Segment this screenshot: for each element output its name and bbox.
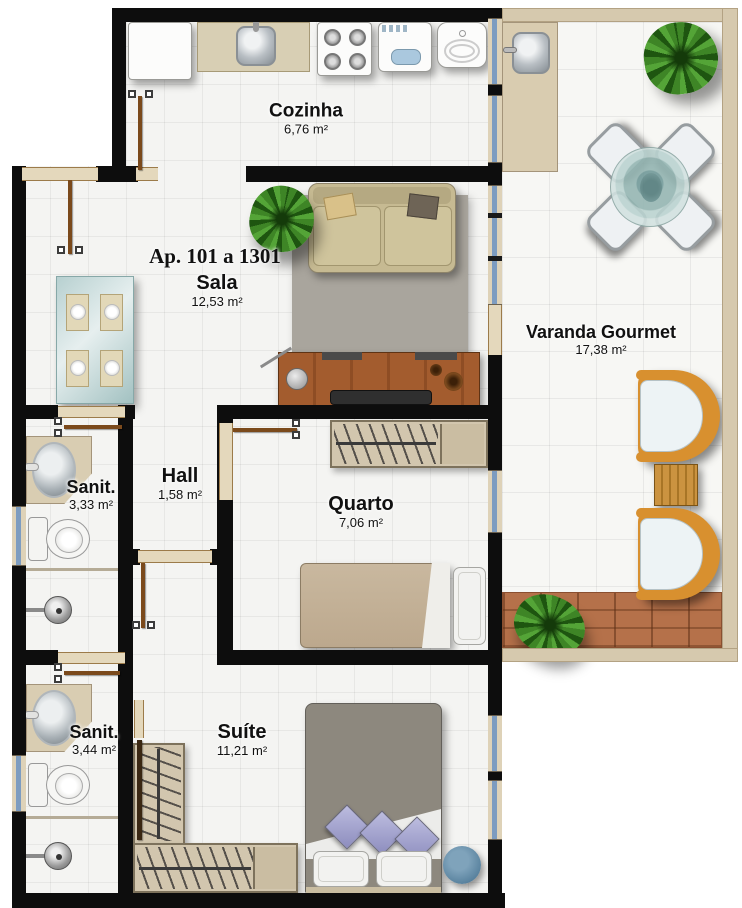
shower-partition: [26, 568, 118, 571]
room-label-hall: Hall 1,58 m²: [158, 465, 202, 503]
room-name: Varanda Gourmet: [526, 322, 676, 343]
window: [488, 470, 502, 533]
door-threshold: [58, 652, 125, 664]
door-hinge: [54, 663, 62, 671]
plate: [70, 360, 86, 376]
wall-segment: [96, 166, 138, 182]
entrance-door-leaf: [68, 180, 72, 254]
bed-pillow: [453, 567, 486, 645]
door-leaf: [64, 425, 122, 429]
door-hinge: [57, 246, 65, 254]
hanger-rail: [336, 442, 436, 445]
shower-head: [44, 842, 72, 870]
room-area: 7,06 m²: [328, 516, 394, 531]
speaker: [415, 352, 457, 360]
burner: [349, 29, 366, 46]
wardrobe: [330, 420, 488, 468]
wall-segment: [118, 405, 133, 655]
laundry-tub: [437, 22, 487, 68]
burner: [324, 53, 341, 70]
side-table: [654, 464, 698, 506]
wardrobe-shelf: [253, 847, 296, 889]
round-glass-table: [610, 147, 690, 227]
gourmet-faucet: [503, 47, 517, 53]
toilet: [28, 763, 48, 807]
basin-faucet: [24, 711, 39, 719]
room-label-quarto: Quarto 7,06 m²: [328, 493, 394, 531]
window: [488, 18, 502, 85]
room-area: 3,44 m²: [69, 743, 118, 758]
speaker: [322, 352, 362, 360]
window: [12, 755, 26, 812]
door-leaf: [64, 671, 120, 675]
door-hinge: [75, 246, 83, 254]
room-area: 17,38 m²: [526, 343, 676, 358]
decor-bowl: [430, 364, 442, 376]
fridge: [128, 22, 192, 80]
wall-segment: [12, 893, 505, 908]
wall-segment: [217, 650, 502, 665]
shower-partition: [26, 816, 118, 819]
shower-center: [56, 854, 62, 860]
plate: [70, 304, 86, 320]
wardrobe-shelf: [440, 424, 484, 464]
wall-segment: [118, 650, 133, 893]
door-hinge: [54, 417, 62, 425]
room-name: Suíte: [217, 721, 267, 744]
place-setting: [66, 294, 89, 331]
room-name: Cozinha: [269, 101, 343, 123]
door-leaf: [138, 96, 142, 170]
throw-pillow: [407, 193, 440, 219]
burner: [324, 29, 341, 46]
room-name: Sanit.: [66, 477, 115, 498]
door-hinge: [132, 621, 140, 629]
door-panel-divider: [488, 256, 502, 261]
shower-head: [44, 596, 72, 624]
wall-segment: [488, 840, 502, 893]
door-hinge: [292, 431, 300, 439]
wall-segment: [210, 549, 233, 565]
hanger-rail: [139, 867, 251, 870]
bowl-inner: [55, 773, 83, 799]
toilet-bowl: [46, 765, 90, 805]
window: [488, 780, 502, 840]
wall-segment: [488, 8, 502, 18]
wall-segment: [112, 8, 502, 22]
parapet-top: [502, 8, 738, 22]
table-center: [640, 173, 662, 202]
room-area: 11,21 m²: [217, 744, 267, 759]
room-name: Sala: [191, 272, 242, 295]
tv: [330, 390, 432, 405]
parapet-bottom: [502, 648, 738, 662]
plate: [104, 360, 120, 376]
exterior-area: [0, 0, 112, 166]
door-hinge: [292, 419, 300, 427]
gourmet-sink: [512, 32, 550, 74]
wall-segment: [118, 549, 140, 565]
wall-segment: [488, 355, 502, 470]
door-threshold: [138, 550, 212, 563]
washing-machine: [378, 22, 432, 72]
room-label-sala: Sala 12,53 m²: [191, 272, 242, 310]
room-label-cozinha: Cozinha 6,76 m²: [269, 101, 343, 138]
table-lamp: [286, 368, 308, 390]
double-bed: [305, 703, 442, 893]
wall-segment: [12, 650, 58, 665]
entrance-threshold: [22, 167, 98, 181]
sliding-glass-door: [488, 185, 502, 305]
place-setting: [100, 350, 123, 387]
window: [12, 506, 26, 566]
wall-segment: [217, 405, 502, 419]
decor-bowl: [444, 372, 463, 391]
chair-cushion: [640, 380, 703, 452]
room-label-sanit1: Sanit. 3,33 m²: [66, 477, 115, 513]
window: [488, 715, 502, 772]
room-label-suite: Suíte 11,21 m²: [217, 721, 267, 759]
door-hinge: [54, 675, 62, 683]
wall-segment: [488, 163, 502, 185]
toilet-bowl: [46, 519, 90, 559]
door-hinge: [145, 90, 153, 98]
bowl-inner: [55, 527, 83, 553]
room-area: 3,33 m²: [66, 498, 115, 513]
wall-segment: [246, 166, 502, 182]
control-panel: [382, 25, 408, 32]
floor-plan: Cozinha 6,76 m² Ap. 101 a 1301 Sala 12,5…: [0, 0, 742, 908]
tub-ridges: [449, 44, 475, 58]
room-area: 1,58 m²: [158, 488, 202, 503]
wardrobe-l-horizontal: [133, 843, 298, 893]
toilet: [28, 517, 48, 561]
wall-segment: [112, 8, 126, 174]
door-hinge: [128, 90, 136, 98]
window-mullion: [488, 85, 502, 95]
burner: [349, 53, 366, 70]
window-mullion: [488, 772, 502, 780]
door-leaf: [141, 563, 145, 628]
sofa: [308, 183, 456, 273]
plate: [104, 304, 120, 320]
window: [488, 95, 502, 163]
basin-faucet: [24, 463, 39, 471]
room-name: Sanit.: [69, 722, 118, 743]
stove: [317, 22, 372, 76]
parapet-right: [722, 8, 738, 662]
door-threshold: [58, 406, 125, 418]
shower-center: [56, 608, 62, 614]
door-leaf: [233, 428, 297, 432]
wall-segment: [488, 533, 502, 715]
door-hinge: [54, 429, 62, 437]
door-jamb: [134, 700, 144, 738]
room-area: 6,76 m²: [269, 122, 343, 137]
wall-segment: [12, 405, 58, 419]
chair-cushion: [640, 518, 703, 590]
armrest: [636, 370, 662, 380]
apartment-title: Ap. 101 a 1301: [149, 244, 281, 268]
door-panel-divider: [488, 213, 502, 218]
wall-panel: [488, 305, 502, 355]
place-setting: [66, 350, 89, 387]
room-label-varanda: Varanda Gourmet 17,38 m²: [526, 322, 676, 358]
armrest: [636, 508, 662, 518]
room-area: 12,53 m²: [191, 295, 242, 310]
door-jamb: [219, 423, 233, 500]
armrest: [636, 452, 662, 462]
pouf: [443, 846, 481, 884]
hanger-rail: [157, 749, 160, 839]
kitchen-sink: [236, 26, 276, 66]
door-leaf: [137, 740, 142, 840]
bed-pillow: [376, 851, 432, 887]
bed-pillow: [313, 851, 369, 887]
room-name: Quarto: [328, 493, 394, 516]
place-setting: [100, 294, 123, 331]
dining-table: [56, 276, 134, 404]
washer-door: [391, 49, 421, 65]
room-name: Hall: [158, 465, 202, 488]
tub-drain: [459, 30, 466, 37]
armrest: [636, 590, 662, 600]
room-label-sanit2: Sanit. 3,44 m²: [69, 722, 118, 758]
door-hinge: [147, 621, 155, 629]
